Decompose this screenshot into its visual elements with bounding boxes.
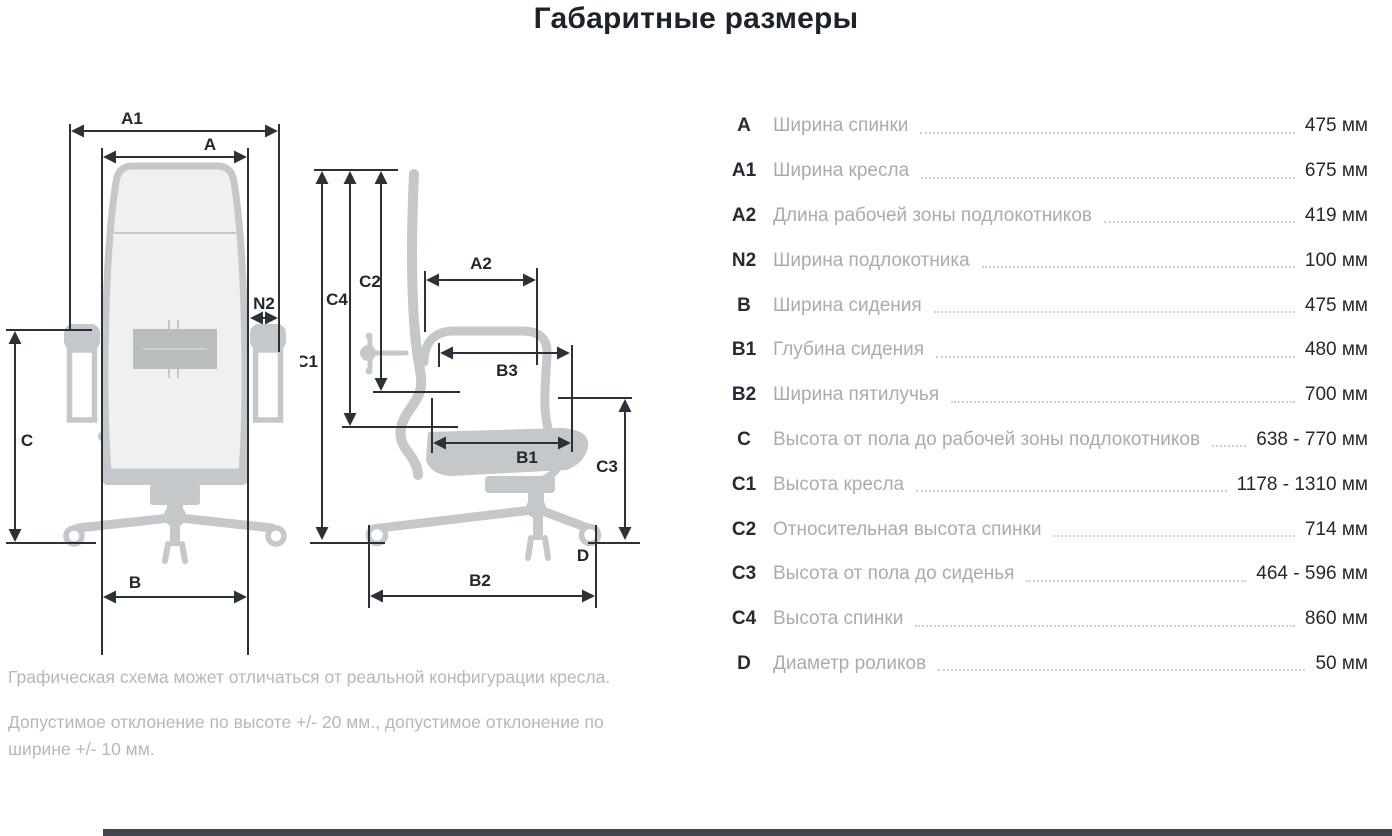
base-legs-side (380, 510, 588, 528)
table-row: C2 Относительная высота спинки 714 мм (727, 507, 1368, 552)
dim-description: Ширина пятилучья (773, 384, 939, 406)
seat-mechanism-side (485, 476, 555, 493)
dim-value: 464 - 596 мм (1256, 563, 1368, 585)
table-row: A Ширина спинки 475 мм (727, 104, 1368, 149)
chair-side-artwork (360, 174, 599, 558)
dim-label-c: C (21, 431, 33, 450)
dim-description: Высота кресла (773, 474, 904, 496)
caster-right (268, 528, 284, 544)
caster-center-stem (170, 518, 180, 546)
dim-label-c4: C4 (326, 290, 348, 309)
dim-description: Ширина сидения (773, 295, 922, 317)
chair-front-artwork (64, 166, 286, 561)
dotted-leader (920, 119, 1295, 134)
dim-code: A (727, 115, 761, 137)
dim-description: Ширина кресла (773, 160, 909, 182)
table-row: C Высота от пола до рабочей зоны подлоко… (727, 418, 1368, 463)
dim-code: A1 (727, 160, 761, 182)
dim-value: 480 мм (1305, 339, 1368, 361)
dim-label-a2: A2 (470, 254, 492, 273)
dotted-leader (1212, 432, 1246, 447)
dim-code: B1 (727, 339, 761, 361)
caster-left (66, 528, 82, 544)
dim-value: 50 мм (1315, 653, 1368, 675)
backrest-frame (105, 166, 245, 472)
dotted-leader (1026, 567, 1246, 582)
table-row: C1 Высота кресла 1178 - 1310 мм (727, 462, 1368, 507)
dotted-leader (951, 388, 1295, 403)
dim-value: 1178 - 1310 мм (1237, 474, 1368, 496)
dim-label-b2: B2 (469, 571, 491, 590)
armrest-loop (424, 331, 548, 428)
chair-side-view-diagram: C1 C4 C2 A2 B3 B1 C3 D B2 (300, 140, 645, 620)
backrest-profile (401, 174, 422, 475)
footnotes: Графическая схема может отличаться от ре… (8, 664, 640, 781)
dim-label-b1: B1 (516, 448, 538, 467)
table-row: D Диаметр роликов 50 мм (727, 642, 1368, 687)
chair-front-view-diagram: A1 A N2 C B (2, 100, 302, 660)
dim-value: 419 мм (1305, 205, 1368, 227)
backrest-knob-bolt-bottom (366, 368, 373, 375)
table-row: B2 Ширина пятилучья 700 мм (727, 373, 1368, 418)
table-row: A2 Длина рабочей зоны подлокотников 419 … (727, 194, 1368, 239)
dim-description: Относительная высота спинки (773, 519, 1041, 541)
dim-label-a: A (204, 135, 216, 154)
page-title: Габаритные размеры (0, 0, 1392, 36)
dim-description: Высота от пола до рабочей зоны подлокотн… (773, 429, 1200, 451)
footnote-tolerance: Допустимое отклонение по высоте +/- 20 м… (8, 709, 640, 762)
armrest-post-left (70, 350, 95, 420)
dim-label-a1: A1 (121, 109, 143, 128)
caster-center-fork-side (528, 538, 548, 558)
dim-description: Диаметр роликов (773, 653, 926, 675)
table-row: N2 Ширина подлокотника 100 мм (727, 238, 1368, 283)
caster-center-fork (165, 544, 185, 561)
dim-code: C3 (727, 563, 761, 585)
table-row: B1 Глубина сидения 480 мм (727, 328, 1368, 373)
dotted-leader (915, 612, 1295, 627)
dim-description: Высота спинки (773, 608, 903, 630)
table-row: A1 Ширина кресла 675 мм (727, 149, 1368, 194)
dim-label-c1: C1 (300, 352, 318, 371)
dim-value: 860 мм (1305, 608, 1368, 630)
dotted-leader (1053, 522, 1294, 537)
table-row: C3 Высота от пола до сиденья 464 - 596 м… (727, 552, 1368, 597)
dim-description: Длина рабочей зоны подлокотников (773, 205, 1092, 227)
dim-label-n2: N2 (253, 294, 275, 313)
dim-code: D (727, 653, 761, 675)
dotted-leader (934, 298, 1295, 313)
dim-value: 700 мм (1305, 384, 1368, 406)
dim-description: Ширина подлокотника (773, 250, 970, 272)
dotted-leader (938, 656, 1305, 671)
backrest-knob-bolt-top (366, 333, 373, 340)
dim-value: 475 мм (1305, 295, 1368, 317)
dim-value: 475 мм (1305, 115, 1368, 137)
dim-value: 100 мм (1305, 250, 1368, 272)
caster-center-stem-side (533, 510, 543, 540)
dotted-leader (936, 343, 1295, 358)
dim-value: 714 мм (1305, 519, 1368, 541)
dim-code: B2 (727, 384, 761, 406)
dim-code: C1 (727, 474, 761, 496)
side-dimension-lines (310, 170, 640, 608)
dim-code: C (727, 429, 761, 451)
armrest-pad-right (250, 324, 286, 350)
dim-code: A2 (727, 205, 761, 227)
dim-label-b: B (129, 573, 141, 592)
dim-code: C2 (727, 519, 761, 541)
table-row: B Ширина сидения 475 мм (727, 283, 1368, 328)
backrest-knob-stem (370, 340, 406, 368)
footnote-scheme-disclaimer: Графическая схема может отличаться от ре… (8, 664, 640, 690)
bottom-section-edge (103, 829, 1392, 836)
table-row: C4 Высота спинки 860 мм (727, 597, 1368, 642)
dotted-leader (982, 253, 1295, 268)
dim-code: B (727, 295, 761, 317)
dotted-leader (921, 164, 1295, 179)
dim-description: Ширина спинки (773, 115, 908, 137)
caster-back (369, 527, 386, 544)
dim-description: Высота от пола до сиденья (773, 563, 1014, 585)
dim-value: 675 мм (1305, 160, 1368, 182)
dim-label-b3: B3 (496, 361, 518, 380)
dim-description: Глубина сидения (773, 339, 924, 361)
dim-label-d: D (577, 546, 589, 565)
dim-label-c3: C3 (596, 457, 618, 476)
dim-value: 638 - 770 мм (1256, 429, 1368, 451)
dim-code: C4 (727, 608, 761, 630)
armrest-post-right (256, 350, 281, 420)
dimensions-table: A Ширина спинки 475 мм A1 Ширина кресла … (727, 104, 1368, 686)
dotted-leader (1104, 208, 1295, 223)
dim-label-c2: C2 (359, 272, 381, 291)
dotted-leader (916, 477, 1226, 492)
dim-code: N2 (727, 250, 761, 272)
